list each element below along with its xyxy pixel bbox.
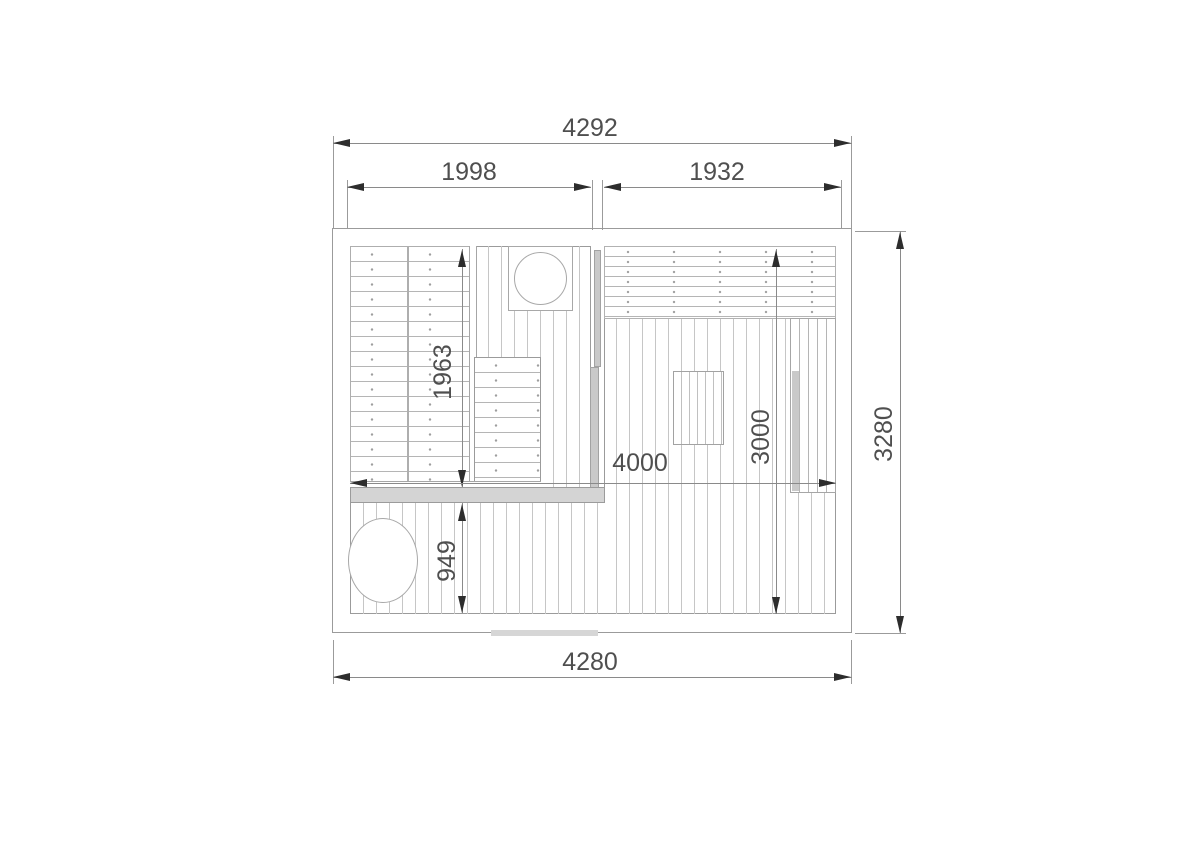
arrow-right-icon: [574, 183, 591, 191]
dim-label-top-overall: 4292: [536, 115, 644, 141]
arrow-up-icon: [772, 250, 780, 267]
arrow-down-icon: [772, 597, 780, 614]
arrow-right-icon: [834, 673, 851, 681]
dim-label-right-overall: 3280: [871, 374, 897, 494]
glass-door-panel-upper: [594, 250, 601, 367]
arrow-up-icon: [458, 250, 466, 267]
dim-label-left-room: 1998: [415, 159, 523, 185]
dimension-line-1963: [462, 249, 463, 487]
dimension-line-3280: [900, 231, 901, 633]
dimension-line-1998: [347, 187, 591, 188]
dimension-line-4280: [333, 677, 852, 678]
dim-label-right-room-depth: 3000: [748, 377, 774, 497]
extension-line: [841, 180, 842, 228]
extension-line: [851, 136, 852, 228]
side-bench-glass-edge: [792, 371, 799, 491]
arrow-left-icon: [347, 183, 364, 191]
dim-label-interior-width: 4000: [586, 450, 694, 476]
arrow-left-icon: [350, 479, 367, 487]
sauna-bench-left-outer: [350, 246, 408, 488]
dimension-line-4292: [333, 143, 852, 144]
arrow-down-icon: [896, 616, 904, 633]
dimension-line-3000: [776, 249, 777, 614]
sauna-heater-circle: [514, 252, 567, 305]
front-door-threshold: [491, 630, 598, 636]
floor-plan-canvas: 4292 1998 1932 3280 4280 1963 949 4000 3…: [0, 0, 1200, 845]
dim-label-bench-length: 1963: [430, 312, 456, 432]
terrace-tub: [348, 518, 418, 603]
sauna-front-wall: [350, 487, 605, 503]
dim-label-bottom-overall: 4280: [536, 649, 644, 675]
sauna-bench-lower: [474, 357, 541, 485]
arrow-right-icon: [834, 139, 851, 147]
extension-line: [333, 136, 334, 228]
extension-line: [855, 633, 906, 634]
dimension-line-1932: [604, 187, 841, 188]
relax-room-table: [673, 371, 724, 445]
extension-line: [602, 180, 603, 230]
arrow-up-icon: [896, 232, 904, 249]
dim-label-terrace-depth: 949: [434, 501, 460, 621]
relax-room-top-bench: [604, 246, 836, 319]
arrow-down-icon: [458, 470, 466, 487]
arrow-left-icon: [333, 139, 350, 147]
arrow-left-icon: [604, 183, 621, 191]
arrow-right-icon: [824, 183, 841, 191]
extension-line: [592, 180, 593, 230]
dim-label-right-room: 1932: [663, 159, 771, 185]
arrow-right-icon: [819, 479, 836, 487]
arrow-left-icon: [333, 673, 350, 681]
